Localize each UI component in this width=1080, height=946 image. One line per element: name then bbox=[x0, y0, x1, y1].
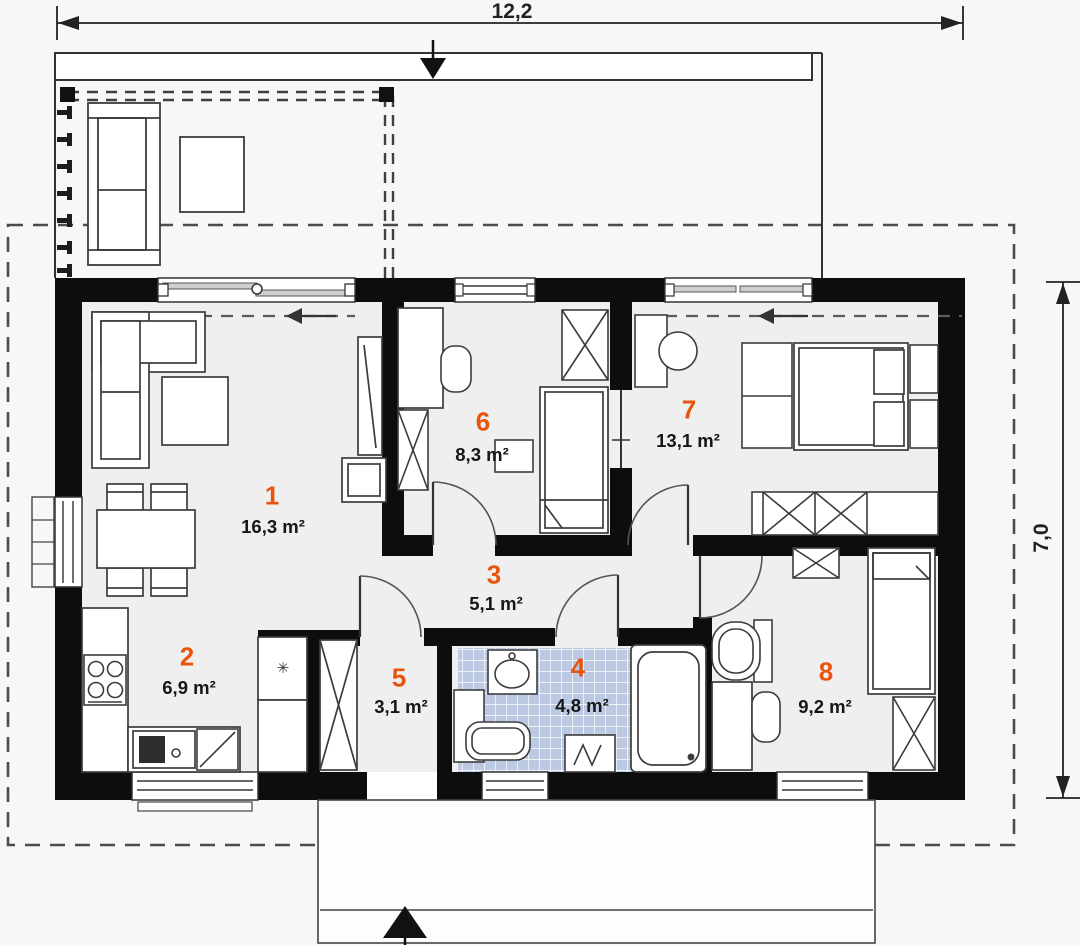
fridge bbox=[258, 637, 307, 772]
sliding-window bbox=[158, 278, 355, 302]
wardrobe-room7 bbox=[752, 492, 938, 535]
bathtub bbox=[631, 645, 706, 772]
window-bathroom bbox=[482, 772, 548, 800]
window-kitchen bbox=[132, 772, 258, 811]
stove-icon bbox=[84, 655, 126, 705]
wardrobe-room6-left bbox=[398, 410, 428, 490]
desk-chair-room6 bbox=[441, 346, 471, 392]
floor-plan-canvas: 12,2 7,0 1 16,3 m² 2 6,9 m² 3 5,1 m² 4 4… bbox=[0, 0, 1080, 946]
window-room6 bbox=[455, 278, 535, 302]
vestibule-wardrobe bbox=[320, 640, 357, 770]
kitchen-sink bbox=[133, 731, 195, 768]
bed-bench-room7 bbox=[742, 343, 792, 448]
wardrobe-room8-top bbox=[793, 548, 839, 578]
washbasin bbox=[488, 650, 537, 694]
terrace-bench bbox=[88, 103, 160, 265]
bed-room6 bbox=[540, 387, 608, 533]
desk-room8 bbox=[712, 682, 752, 770]
dishwasher bbox=[197, 729, 238, 770]
desk-room6 bbox=[398, 308, 443, 408]
toilet-fixture bbox=[712, 620, 772, 682]
coffee-table bbox=[162, 377, 228, 445]
chair-room8 bbox=[752, 692, 780, 742]
floor-plan-drawing bbox=[0, 0, 1080, 946]
double-bed-room7 bbox=[794, 343, 908, 450]
wardrobe-room8-bottom bbox=[893, 697, 935, 770]
terrace-table bbox=[180, 137, 244, 212]
bed-room8 bbox=[868, 548, 935, 694]
window-room7 bbox=[665, 278, 812, 302]
nightstand-room6 bbox=[495, 440, 533, 472]
washing-machine bbox=[565, 735, 615, 772]
bidet bbox=[466, 722, 530, 760]
wardrobe-room6-top bbox=[562, 310, 608, 380]
pocket-door bbox=[610, 390, 632, 468]
